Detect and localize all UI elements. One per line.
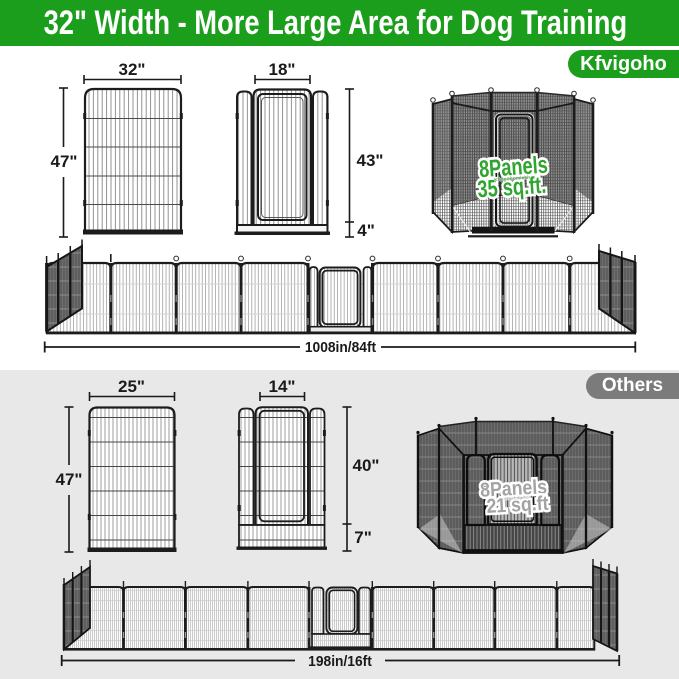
- svg-text:198in/16ft: 198in/16ft: [308, 654, 372, 671]
- svg-text:14": 14": [269, 377, 296, 396]
- svg-text:18": 18": [269, 60, 296, 79]
- svg-text:40": 40": [353, 456, 380, 475]
- svg-text:4": 4": [357, 221, 375, 240]
- svg-text:32": 32": [119, 60, 146, 79]
- svg-text:47": 47": [51, 152, 78, 171]
- svg-text:7": 7": [354, 528, 372, 547]
- svg-text:43": 43": [357, 151, 384, 170]
- svg-text:47": 47": [56, 470, 83, 489]
- svg-text:25": 25": [118, 377, 145, 396]
- svg-text:1008in/84ft: 1008in/84ft: [305, 340, 377, 357]
